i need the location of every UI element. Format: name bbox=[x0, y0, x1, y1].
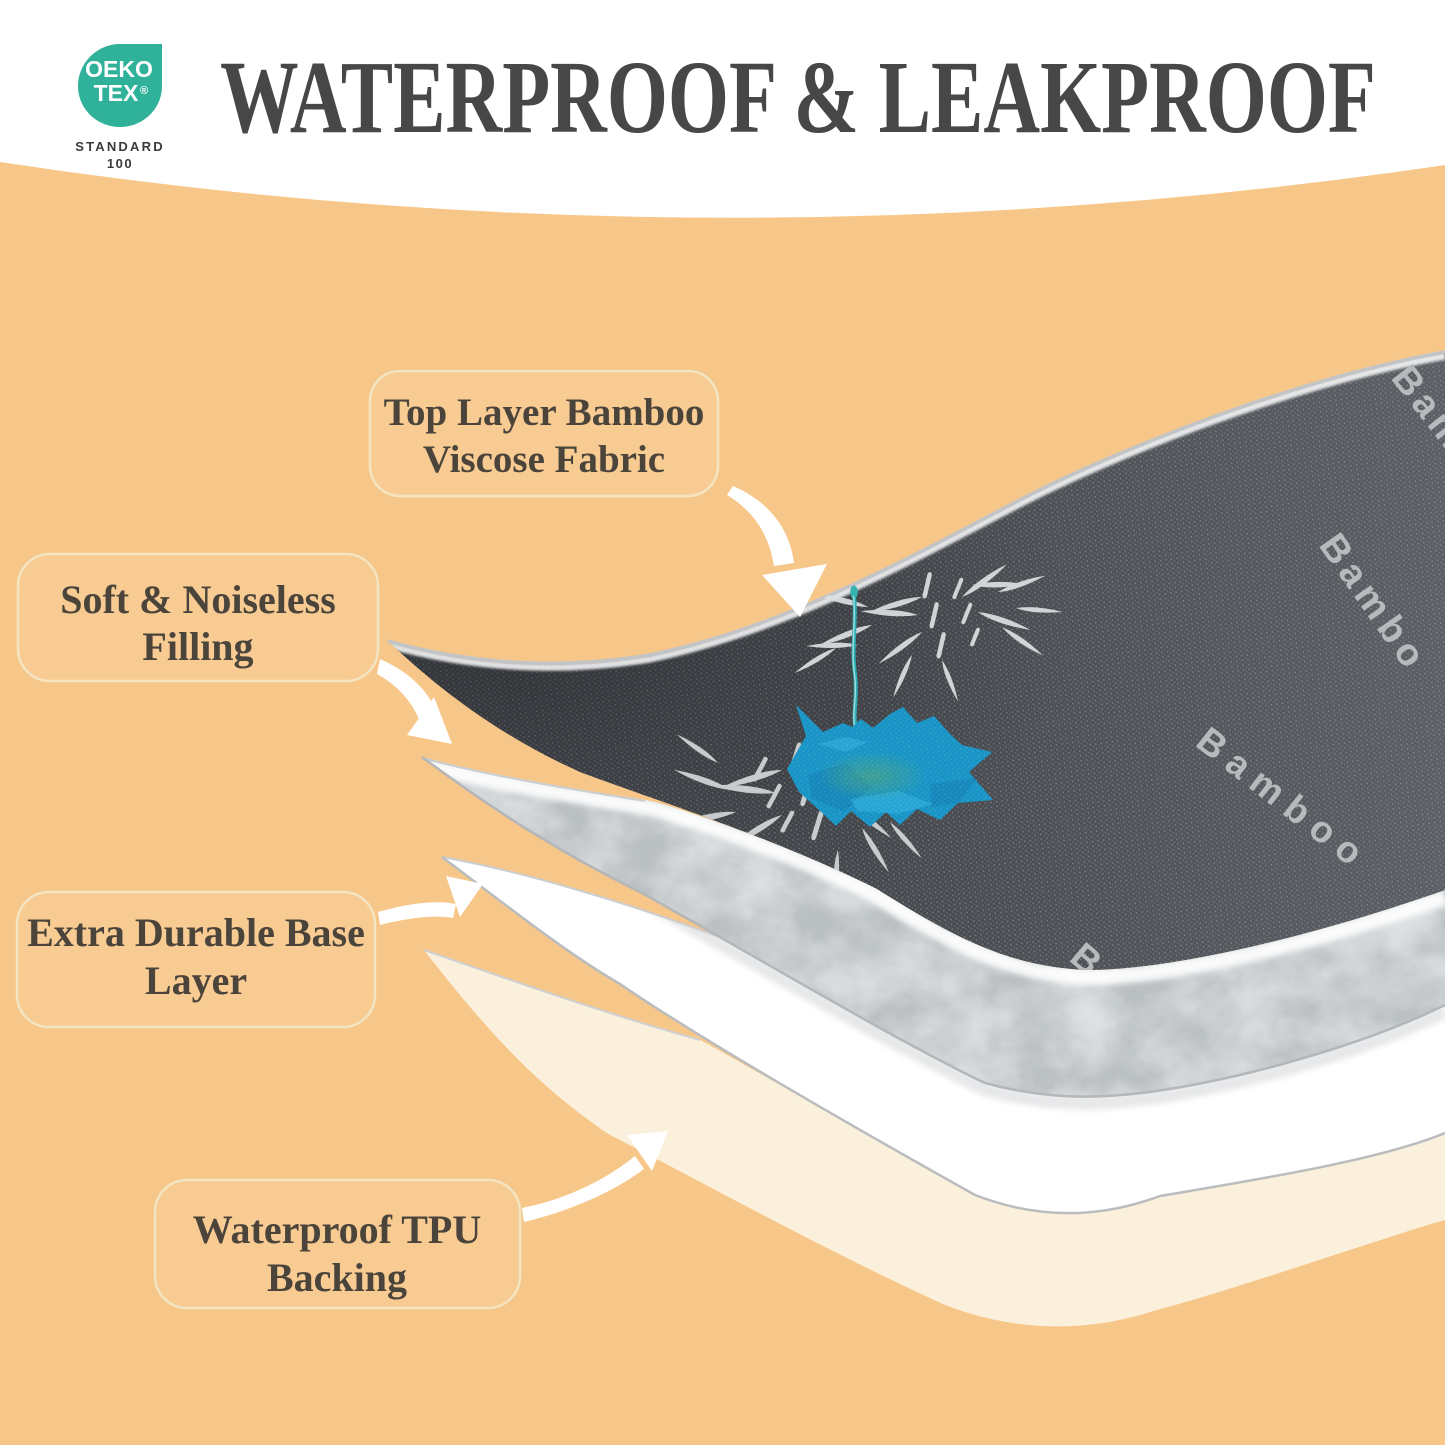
svg-text:Extra Durable Base: Extra Durable Base bbox=[27, 910, 365, 955]
svg-text:TEX: TEX bbox=[94, 80, 139, 106]
svg-text:®: ® bbox=[140, 85, 148, 97]
svg-text:Layer: Layer bbox=[145, 958, 247, 1003]
svg-text:Top Layer Bamboo: Top Layer Bamboo bbox=[384, 391, 705, 434]
svg-text:100: 100 bbox=[107, 156, 133, 171]
svg-text:Backing: Backing bbox=[267, 1255, 407, 1300]
svg-text:Soft & Noiseless: Soft & Noiseless bbox=[60, 577, 336, 622]
svg-text:Viscose Fabric: Viscose Fabric bbox=[423, 438, 665, 481]
svg-text:STANDARD: STANDARD bbox=[75, 139, 165, 154]
svg-text:Filling: Filling bbox=[142, 624, 253, 669]
svg-text:Waterproof TPU: Waterproof TPU bbox=[193, 1207, 482, 1252]
svg-text:WATERPROOF & LEAKPROOF: WATERPROOF & LEAKPROOF bbox=[220, 39, 1376, 154]
svg-text:OEKO: OEKO bbox=[85, 56, 153, 82]
